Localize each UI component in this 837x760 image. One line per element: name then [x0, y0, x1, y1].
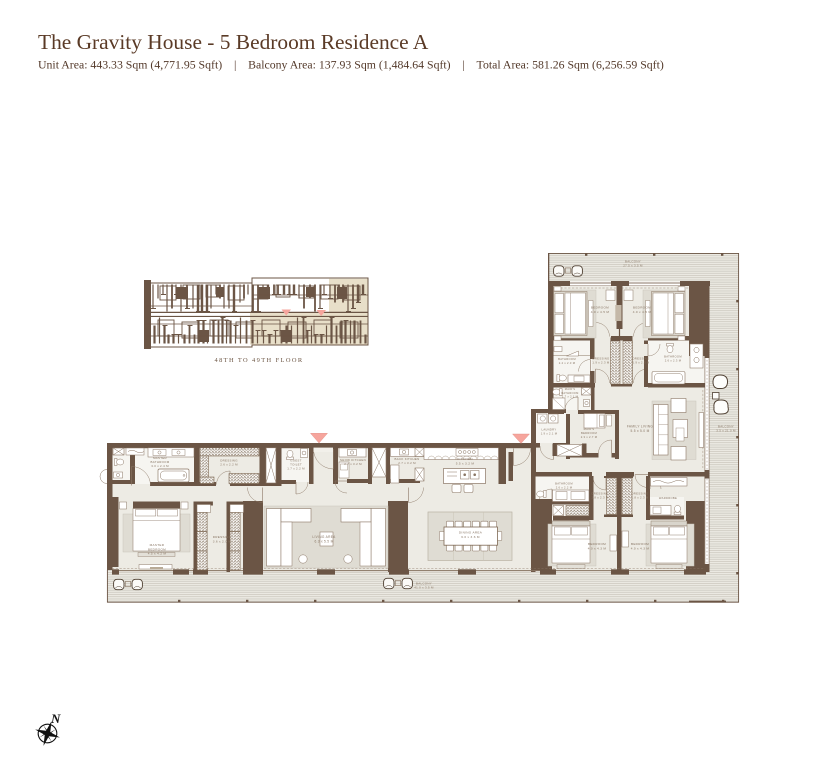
svg-text:2.3 x 2.7 M: 2.3 x 2.7 M [581, 435, 598, 439]
svg-text:4.0 x 4.3 M: 4.0 x 4.3 M [631, 546, 650, 550]
svg-text:41.0 x 3.5 M: 41.0 x 3.5 M [414, 586, 434, 590]
svg-text:MAID'S: MAID'S [584, 427, 595, 431]
svg-text:BATHROOM: BATHROOM [664, 355, 682, 359]
svg-text:4.0 x 4.3 M: 4.0 x 4.3 M [588, 546, 607, 550]
svg-text:3.6 x 2.0 M: 3.6 x 2.0 M [213, 539, 232, 543]
svg-text:3.5 x 21.0 M: 3.5 x 21.0 M [716, 429, 736, 433]
svg-text:2.6 x 2.2 M: 2.6 x 2.2 M [556, 485, 573, 489]
svg-text:1.7 x 2.1 M: 1.7 x 2.1 M [562, 395, 578, 399]
svg-text:1.8 x 2.3 M: 1.8 x 2.3 M [591, 496, 609, 500]
svg-text:6.3 x 5.5 M: 6.3 x 5.5 M [314, 539, 333, 543]
svg-text:1.9 x 2.3 M: 1.9 x 2.3 M [632, 361, 650, 365]
svg-text:MAID'S: MAID'S [565, 387, 576, 391]
svg-text:BEDROOM: BEDROOM [581, 431, 597, 435]
svg-text:27.5 x 3.5 M: 27.5 x 3.5 M [623, 264, 643, 268]
svg-text:LIVING AREA: LIVING AREA [312, 535, 336, 539]
svg-text:2.6 x 2.3 M: 2.6 x 2.3 M [665, 358, 682, 362]
svg-text:6.0 x 3.6 M: 6.0 x 3.6 M [461, 535, 480, 539]
svg-text:1.9 x 2.1 M: 1.9 x 2.1 M [541, 431, 558, 435]
svg-text:2.6 x 2.2 M: 2.6 x 2.2 M [220, 463, 238, 467]
svg-text:1.8 x 2.3 M: 1.8 x 2.3 M [631, 496, 649, 500]
svg-text:1.7 x 2.2 M: 1.7 x 2.2 M [287, 467, 305, 471]
svg-text:2.4 x 2.3 M: 2.4 x 2.3 M [559, 361, 576, 365]
svg-text:2.7 x 3.2 M: 2.7 x 3.2 M [344, 462, 362, 466]
svg-text:N: N [50, 711, 61, 726]
svg-text:5.5 x 5.0 M: 5.5 x 5.0 M [630, 429, 649, 433]
svg-text:4.5 x 4.2 M: 4.5 x 4.2 M [148, 552, 167, 556]
svg-text:4.0 x 4.5 M: 4.0 x 4.5 M [591, 310, 610, 314]
svg-text:48TH TO 49TH FLOOR: 48TH TO 49TH FLOOR [214, 357, 303, 364]
svg-text:1.9 x 2.3 M: 1.9 x 2.3 M [592, 361, 610, 365]
svg-text:BATHROOM: BATHROOM [555, 482, 573, 486]
svg-text:The Gravity House - 5 Bedroom: The Gravity House - 5 Bedroom Residence … [38, 30, 429, 54]
svg-text:BATHROOM: BATHROOM [558, 357, 576, 361]
svg-text:3.0 x 2.4 M: 3.0 x 2.4 M [151, 464, 169, 468]
svg-text:WARDROBE: WARDROBE [659, 496, 677, 500]
svg-text:Unit Area: 443.33 Sqm (4,771.9: Unit Area: 443.33 Sqm (4,771.95 Sqft) | … [38, 58, 664, 72]
svg-text:FAMILY LIVING: FAMILY LIVING [627, 425, 653, 429]
svg-text:BATHROOM: BATHROOM [561, 391, 578, 395]
svg-text:2.7 x 3.2 M: 2.7 x 3.2 M [398, 461, 416, 465]
svg-text:4.0 x 4.5 M: 4.0 x 4.5 M [633, 310, 652, 314]
svg-text:5.5 x 3.2 M: 5.5 x 3.2 M [456, 461, 475, 465]
svg-text:LAUNDRY: LAUNDRY [542, 428, 557, 432]
